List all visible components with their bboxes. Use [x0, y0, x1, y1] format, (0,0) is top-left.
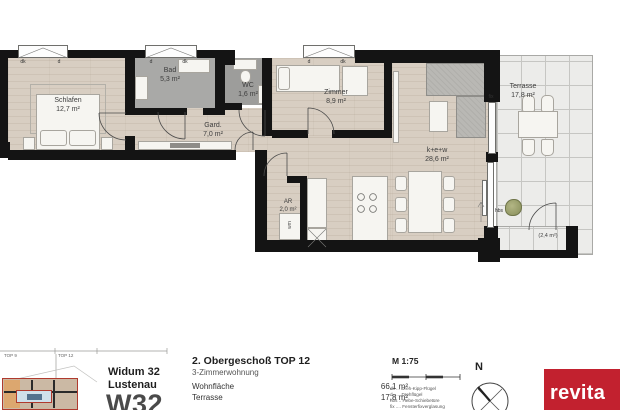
room-label-kew: k+e+w 28,6 m² [415, 146, 459, 164]
overview-mini-plan [2, 378, 78, 410]
brand-logo: revita [544, 369, 620, 410]
metric-label: Terrasse [192, 393, 322, 402]
legend-line-d: d ..... Drehflügel [390, 392, 422, 398]
unit-title: 2. Obergeschoß TOP 12 [192, 355, 310, 367]
cooktop-burner-icon [358, 206, 365, 213]
cooktop-burner-icon [358, 194, 365, 201]
metric-label: Wohnfläche [192, 382, 322, 391]
room-label-wc: WC 1,6 m² [226, 81, 270, 99]
room-label-zimmer: Zimmer 8,9 m² [314, 88, 358, 106]
small-terrace-area-label: (2,4 m²) [524, 233, 572, 239]
window-swing-mark [18, 48, 68, 58]
room-name: AR [266, 198, 310, 206]
door-arc [235, 132, 253, 150]
door-arc [529, 203, 556, 230]
room-area: 1,6 m² [226, 90, 270, 99]
mini-plan-wall [53, 380, 55, 408]
window-type-label: d [144, 59, 158, 65]
room-label-gard: Gard. 7,0 m² [191, 121, 235, 139]
legend-line-fix: fix .... Fensterfixverglasung [390, 404, 445, 410]
overview-label-top9: TOP 9 [4, 353, 17, 358]
appliance-x-mark [308, 229, 326, 247]
hbs-door-label: hbs [491, 208, 507, 214]
legend-line-hbs: hbs .. Hebe-Schiebetüre [390, 398, 440, 404]
door-arc [158, 112, 185, 139]
floorplan-sheet: Schlafen 12,7 m² Bad 5,3 m² WC 1,6 m² Ga… [0, 0, 620, 410]
mini-plan-highlight-unit [16, 390, 52, 403]
brand-logo-text: revita [550, 382, 605, 405]
room-area: 8,9 m² [314, 97, 358, 106]
room-name: Gard. [191, 121, 235, 130]
window-swing-mark [303, 48, 355, 58]
overview-label-top12: TOP 12 [58, 353, 73, 358]
window-type-label: dk [16, 59, 30, 65]
room-area: 17,8 m² [501, 91, 545, 100]
room-name: Zimmer [314, 88, 358, 97]
scale-bar-segment [426, 376, 443, 379]
cooktop-burner-icon [370, 206, 377, 213]
room-area: 7,0 m² [191, 130, 235, 139]
window-type-label: d [52, 59, 66, 65]
room-name: WC [226, 81, 270, 90]
room-name: Schlafen [26, 96, 110, 105]
room-area: 5,3 m² [148, 75, 192, 84]
window-type-label: d [302, 59, 316, 65]
fix-glazing-label: fix [484, 94, 498, 100]
window-swing-mark [145, 48, 197, 58]
scale-bar-segment [392, 376, 409, 379]
room-label-schlafen: Schlafen 12,7 m² [26, 96, 110, 114]
room-area: 12,7 m² [26, 105, 110, 114]
unit-subtitle: 3-Zimmerwohnung [192, 368, 259, 377]
door-arc [99, 113, 126, 140]
door-arc [264, 153, 287, 176]
mini-plan-unit-core [27, 394, 42, 400]
door-arc [308, 108, 334, 134]
north-label: N [475, 361, 483, 373]
project-name-line1: Widum 32 [108, 366, 160, 378]
cooktop-burner-icon [370, 194, 377, 201]
window-type-label: dk [336, 59, 350, 65]
window-type-label: dk [178, 59, 192, 65]
overview-ruler [0, 348, 167, 354]
room-label-terrasse: Terrasse 17,8 m² [501, 82, 545, 100]
compass-icon [472, 383, 508, 410]
room-name: Terrasse [501, 82, 545, 91]
legend-line-dk: dk ... Dreh-Kipp-Flügel [390, 386, 436, 392]
room-area: 28,6 m² [415, 155, 459, 164]
slide-direction-arrow [478, 202, 484, 222]
project-code: W32 [106, 391, 163, 410]
room-name: Bad [148, 66, 192, 75]
room-label-bad: Bad 5,3 m² [148, 66, 192, 84]
scale-label: M 1:75 [392, 356, 418, 366]
room-name: k+e+w [415, 146, 459, 155]
washing-machine-label: wm [287, 211, 293, 239]
